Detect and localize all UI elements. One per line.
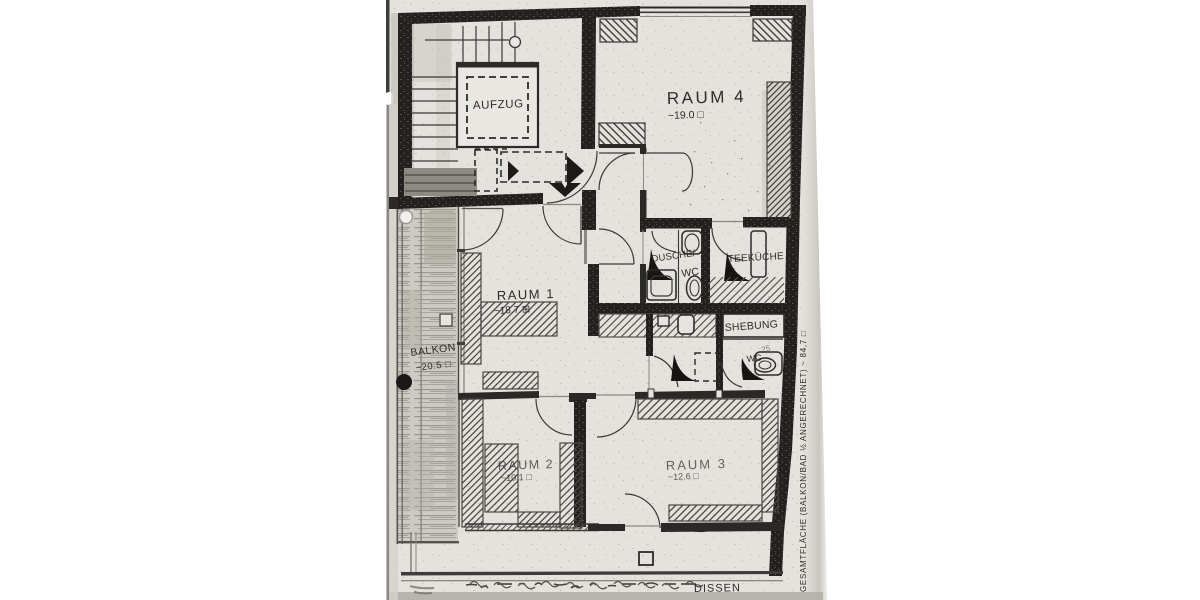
svg-text:GESAMTFLÄCHE (BALKON/BAD ½ ANG: GESAMTFLÄCHE (BALKON/BAD ½ ANGERECHNET) … bbox=[799, 331, 808, 592]
svg-text:RAUM 1: RAUM 1 bbox=[497, 286, 556, 303]
svg-text:~19.0 □: ~19.0 □ bbox=[668, 109, 705, 122]
svg-text:~12.6 □: ~12.6 □ bbox=[668, 471, 700, 482]
svg-text:DISSEN: DISSEN bbox=[694, 582, 741, 595]
svg-text:~18.7 ⊞: ~18.7 ⊞ bbox=[494, 304, 531, 317]
svg-text:RAUM 4: RAUM 4 bbox=[667, 87, 747, 108]
svg-text:WC: WC bbox=[681, 266, 700, 280]
svg-text:RAUM 2: RAUM 2 bbox=[498, 457, 555, 473]
svg-text:~10.1 □: ~10.1 □ bbox=[501, 472, 533, 483]
svg-text:WC: WC bbox=[746, 352, 762, 364]
svg-text:AUFZUG: AUFZUG bbox=[473, 98, 524, 112]
